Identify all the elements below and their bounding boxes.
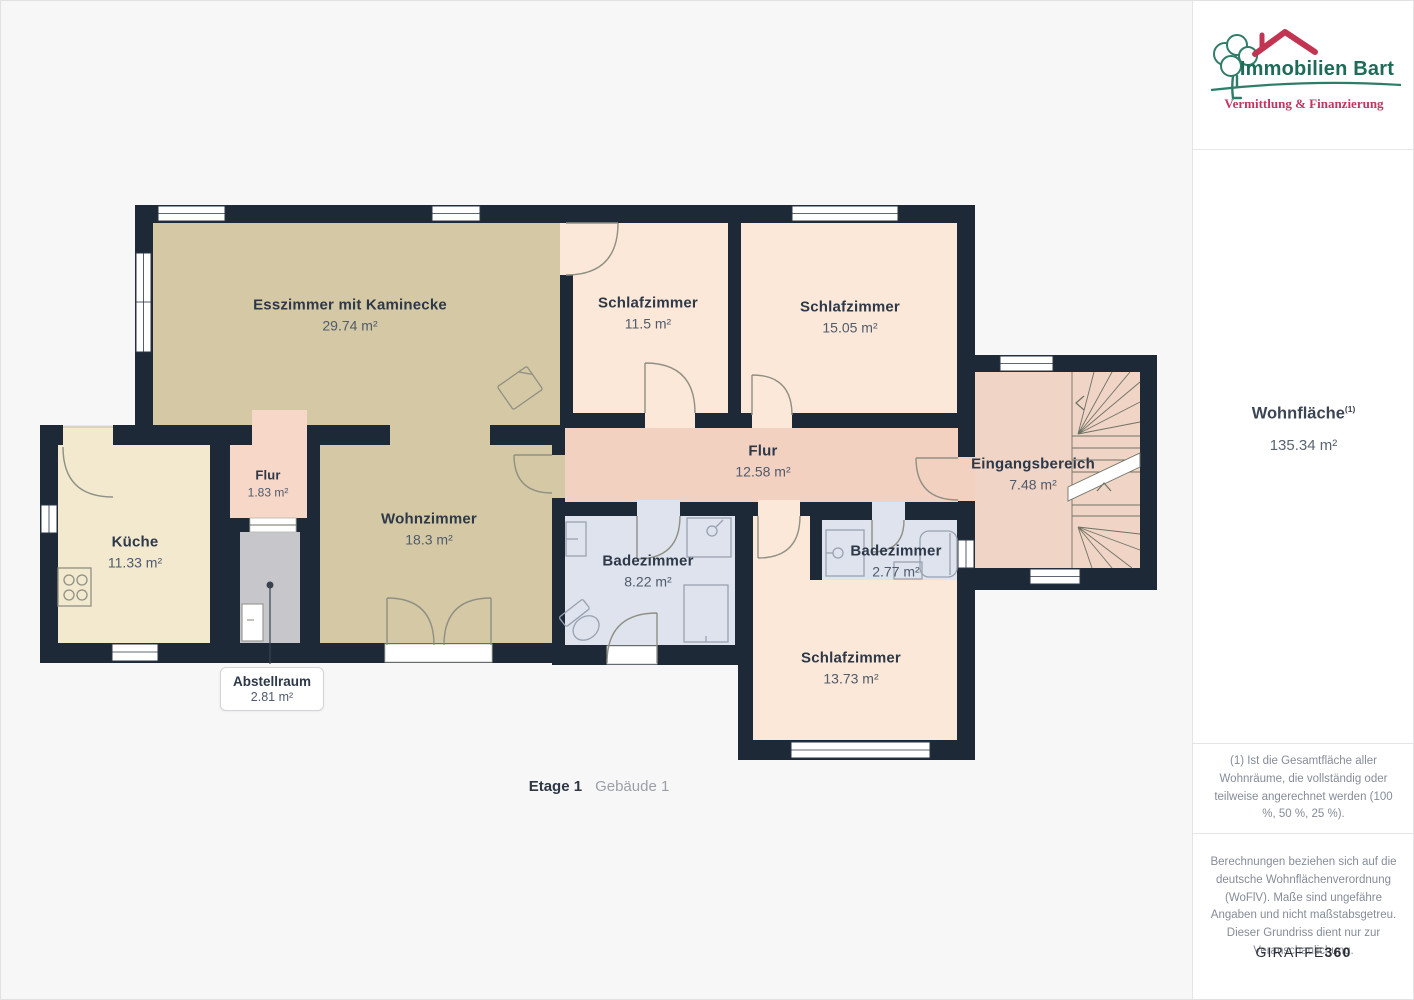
room-label-schlafzimmer-3: Schlafzimmer 13.73 m² <box>801 649 901 688</box>
room-name: Esszimmer mit Kaminecke <box>253 296 447 316</box>
room-label-schlafzimmer-1: Schlafzimmer 11.5 m² <box>598 294 698 333</box>
logo-block: Immobilien Bart Vermittlung & Finanzieru… <box>1193 0 1414 150</box>
room-name: Schlafzimmer <box>598 294 698 314</box>
company-logo: Immobilien Bart Vermittlung & Finanzieru… <box>1203 20 1405 130</box>
room-name: Abstellraum <box>233 674 311 689</box>
room-label-flur-klein: Flur 1.83 m² <box>248 467 289 500</box>
room-area: 2.77 m² <box>850 562 941 580</box>
room-name: Küche <box>108 533 162 553</box>
room-area: 29.74 m² <box>253 316 447 334</box>
floor-label: Etage 1 <box>529 778 582 795</box>
room-name: Eingangsbereich <box>971 455 1095 475</box>
room-area: 15.05 m² <box>800 318 900 336</box>
room-area: 12.58 m² <box>735 462 790 480</box>
room-area: 13.73 m² <box>801 669 901 687</box>
living-area-title: Wohnfläche(1) <box>1193 404 1414 424</box>
room-label-abstellraum: Abstellraum 2.81 m² <box>220 667 324 711</box>
room-area: 1.83 m² <box>248 485 289 501</box>
room-name: Flur <box>735 442 790 462</box>
brand-name: GIRAFFE <box>1255 944 1324 960</box>
footnote-block: (1) Ist die Gesamtfläche aller Wohnräume… <box>1193 743 1414 834</box>
footnote-marker: (1) <box>1345 404 1355 414</box>
brand-suffix: 360 <box>1325 944 1352 960</box>
room-label-esszimmer: Esszimmer mit Kaminecke 29.74 m² <box>253 296 447 335</box>
logo-title: Immobilien Bart <box>1229 58 1405 81</box>
room-label-schlafzimmer-2: Schlafzimmer 15.05 m² <box>800 298 900 337</box>
room-label-badezimmer-2: Badezimmer 2.77 m² <box>850 542 941 581</box>
living-area-value: 135.34 m² <box>1193 437 1414 454</box>
room-area: 7.48 m² <box>971 475 1095 493</box>
room-area: 2.81 m² <box>233 690 311 704</box>
room-area: 18.3 m² <box>381 530 477 548</box>
plan-caption: Etage 1Gebäude 1 <box>529 778 670 795</box>
building-label: Gebäude 1 <box>595 778 669 795</box>
room-label-wohnzimmer: Wohnzimmer 18.3 m² <box>381 510 477 549</box>
giraffe360-logo: GIRAFFE360 <box>1193 944 1414 960</box>
room-label-flur: Flur 12.58 m² <box>735 442 790 481</box>
info-panel: Immobilien Bart Vermittlung & Finanzieru… <box>1192 0 1414 1000</box>
room-name: Flur <box>248 467 289 484</box>
room-label-eingangsbereich: Eingangsbereich 7.48 m² <box>971 455 1095 494</box>
room-name: Badezimmer <box>602 552 693 572</box>
room-area: 11.5 m² <box>598 314 698 332</box>
living-area-summary: Wohnfläche(1) 135.34 m² <box>1193 404 1414 454</box>
storage-cabinet <box>242 604 263 641</box>
room-name: Schlafzimmer <box>801 649 901 669</box>
room-label-kueche: Küche 11.33 m² <box>108 533 162 572</box>
room-name: Schlafzimmer <box>800 298 900 318</box>
room-name: Badezimmer <box>850 542 941 562</box>
footnote-text: (1) Ist die Gesamtfläche aller Wohnräume… <box>1210 753 1398 824</box>
room-area: 8.22 m² <box>602 572 693 590</box>
room-label-badezimmer-1: Badezimmer 8.22 m² <box>602 552 693 591</box>
room-name: Wohnzimmer <box>381 510 477 530</box>
logo-subtitle: Vermittlung & Finanzierung <box>1203 96 1405 112</box>
room-area: 11.33 m² <box>108 553 162 571</box>
